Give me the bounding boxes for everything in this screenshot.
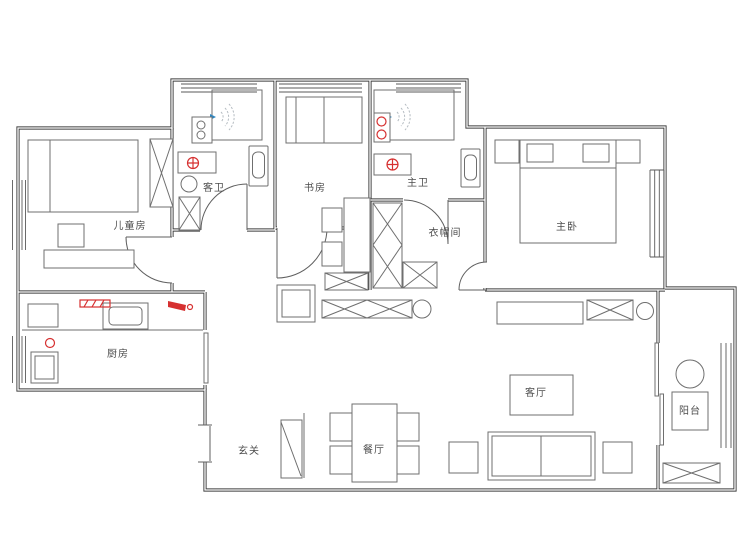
stool — [413, 300, 431, 318]
plant — [637, 303, 654, 320]
room-guest-bathroom: 客卫 — [178, 90, 268, 230]
balcony-storage — [663, 463, 720, 483]
wardrobe — [373, 203, 402, 288]
corner-cabinet — [179, 197, 200, 230]
round-sink — [181, 176, 197, 192]
room-label-master-bedroom: 主卧 — [556, 220, 578, 233]
floorplan-drawing: 儿童房 客卫 — [0, 0, 740, 555]
door-kitchen-sliding — [204, 333, 208, 383]
room-master-bedroom: 主卧 — [495, 140, 640, 243]
room-label-children: 儿童房 — [114, 219, 147, 232]
gas-valve-icon — [46, 339, 55, 348]
dining-chair — [397, 413, 419, 441]
window-guest-bath-top — [181, 84, 257, 92]
sofa — [488, 432, 595, 480]
washbasin-unit — [374, 113, 390, 142]
room-kitchen: 厨房 — [22, 300, 203, 383]
shoe-cabinet — [281, 413, 304, 478]
floor-drain-icon — [188, 158, 199, 169]
children-wardrobe — [150, 139, 173, 207]
children-desk — [44, 250, 134, 268]
floor-drain-icon — [387, 159, 398, 170]
room-living: 客厅 — [449, 300, 654, 480]
room-master-bathroom: 主卫 — [374, 90, 480, 189]
kitchen-appliance — [31, 352, 58, 383]
dining-table — [352, 404, 397, 482]
hallway-sideboard — [322, 300, 431, 318]
room-label-cloakroom: 衣帽间 — [429, 226, 462, 239]
balcony-table-round — [676, 360, 704, 388]
floorplan-canvas: 儿童房 客卫 — [0, 0, 740, 555]
room-balcony: 阳台 — [663, 360, 720, 483]
window-master-bedroom-right — [650, 170, 664, 257]
dining-chair — [397, 446, 419, 474]
piano — [277, 285, 315, 322]
room-label-dining: 餐厅 — [363, 443, 385, 456]
faucet-icon — [168, 301, 193, 311]
shower-area — [212, 90, 262, 140]
window-master-bath-top — [396, 84, 461, 92]
fridge — [28, 304, 58, 327]
side-table — [603, 442, 632, 473]
side-table — [449, 442, 478, 473]
room-label-study: 书房 — [304, 181, 326, 194]
window-study-top — [279, 84, 362, 92]
nightstand — [616, 140, 640, 163]
study-chair — [322, 208, 342, 232]
tv-cabinet — [497, 302, 583, 324]
wardrobe — [403, 262, 437, 288]
toilet-icon — [461, 149, 480, 187]
dining-chair — [330, 413, 352, 441]
room-label-entryway: 玄关 — [238, 444, 260, 457]
room-entryway: 玄关 — [238, 413, 304, 478]
room-label-kitchen: 厨房 — [107, 347, 129, 360]
shower-icon — [210, 104, 234, 130]
room-children: 儿童房 — [28, 139, 173, 268]
door-study — [277, 228, 327, 278]
dining-chair — [330, 446, 352, 474]
room-dining: 餐厅 — [330, 404, 419, 482]
side-cabinet — [587, 300, 633, 320]
children-bed — [28, 140, 138, 212]
room-label-guest-bathroom: 客卫 — [203, 181, 225, 194]
study-chair — [322, 242, 342, 266]
children-chair — [58, 224, 84, 247]
hallway-cabinet — [325, 273, 368, 290]
study-desk — [344, 198, 370, 272]
window-balcony-right — [721, 343, 731, 448]
nightstand — [495, 140, 519, 163]
room-label-balcony: 阳台 — [679, 404, 701, 417]
toilet-icon — [249, 146, 268, 186]
study-bed — [286, 97, 362, 143]
room-label-living: 客厅 — [525, 386, 547, 399]
room-study: 书房 — [286, 97, 370, 272]
room-label-master-bathroom: 主卫 — [407, 177, 429, 189]
washbasin-unit — [192, 117, 212, 143]
